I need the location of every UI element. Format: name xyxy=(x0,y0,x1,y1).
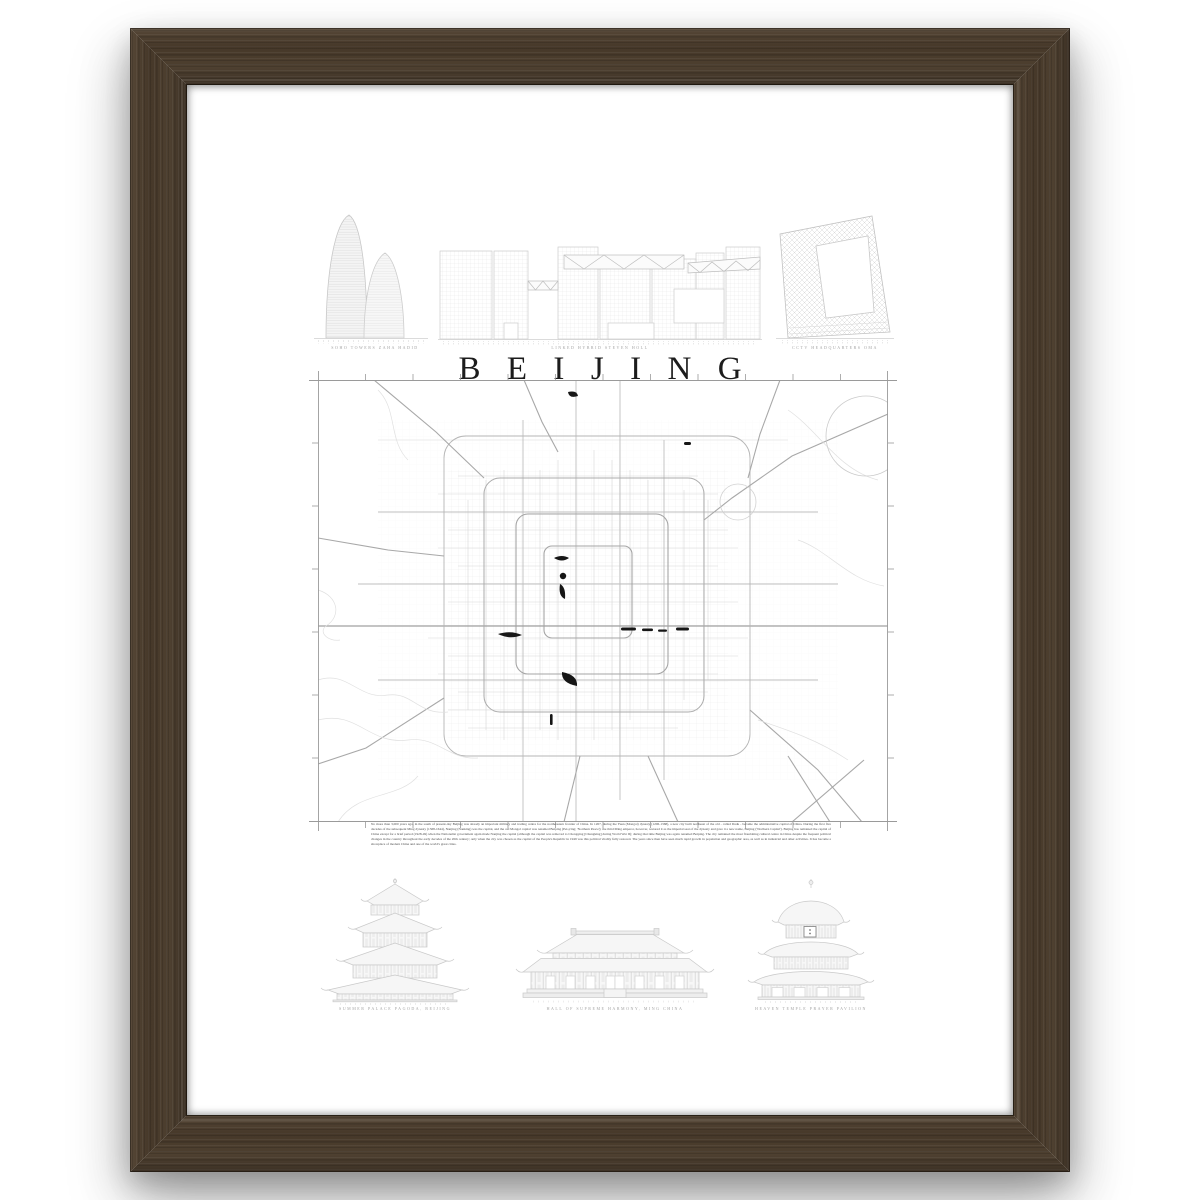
frame-bar-top xyxy=(130,28,1070,85)
frame-bar-bottom xyxy=(130,1115,1070,1172)
product-photo-framed-beijing-print: SOHO TOWERS ZAHA HADID xyxy=(0,0,1200,1200)
hall-of-supreme-harmony-drawing xyxy=(518,926,712,1004)
poster: SOHO TOWERS ZAHA HADID xyxy=(187,85,1013,1115)
cctv-headquarters-drawing xyxy=(772,210,898,347)
linked-hybrid-drawing xyxy=(438,243,762,347)
landmark-label-temple: HEAVEN TEMPLE PRAYER PAVILION xyxy=(730,1007,892,1012)
frame-bar-left xyxy=(130,28,187,1172)
temple-of-heaven-drawing xyxy=(740,878,882,1004)
history-paragraph: No more than 3,000 years ago, in the sou… xyxy=(371,822,831,848)
summer-palace-pagoda-drawing xyxy=(320,877,470,1004)
wangjing-soho-drawing xyxy=(308,203,442,345)
frame-bar-right xyxy=(1013,28,1070,1172)
picture-frame: SOHO TOWERS ZAHA HADID xyxy=(130,28,1070,1172)
landmark-label-pagoda: SUMMER PALACE PAGODA, BEIJING xyxy=(310,1007,480,1012)
landmark-label-hall: HALL OF SUPREME HARMONY, MING CHINA xyxy=(513,1007,717,1012)
beijing-street-map xyxy=(318,380,888,822)
